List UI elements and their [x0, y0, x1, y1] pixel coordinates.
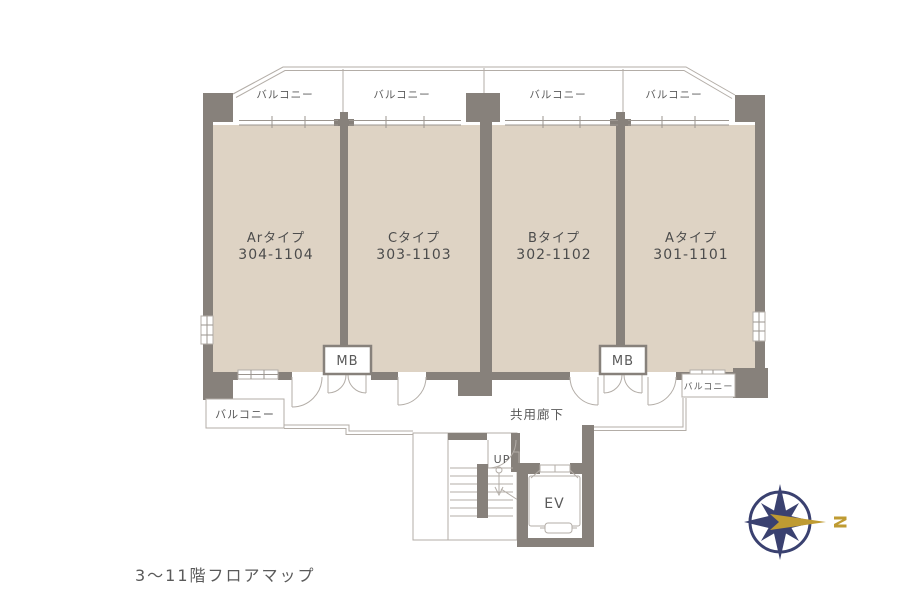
floor-plan: MB MB バルコニー バルコニー 共用廊下 UP: [0, 0, 900, 600]
compass-north-label: N: [829, 515, 849, 529]
unit-b-numbers: 302-1102: [516, 247, 591, 263]
stairwell: UP: [413, 433, 527, 540]
pillar-bottom-right: [733, 368, 768, 398]
wall-left-upper: [203, 122, 213, 317]
mb-label-1: MB: [336, 354, 358, 369]
floor-plan-page: MB MB バルコニー バルコニー 共用廊下 UP: [0, 0, 900, 600]
party-wall-b-a: [616, 112, 625, 372]
pillar-top-right: [735, 95, 765, 122]
unit-c-numbers: 303-1103: [376, 247, 451, 263]
page-caption: 3〜11階フロアマップ: [135, 566, 316, 585]
unit-a-numbers: 301-1101: [653, 247, 728, 263]
pillar-top-middle: [466, 93, 500, 122]
wall-right-lower: [755, 340, 765, 368]
balcony-top-label-3: バルコニー: [529, 89, 586, 101]
unit-ar-type: Arタイプ: [247, 231, 305, 246]
window-bottom-left: [238, 370, 278, 379]
elevator-door: [540, 465, 555, 472]
party-wall-ar-c: [340, 112, 348, 372]
mb-label-2: MB: [612, 354, 634, 369]
corridor-label: 共用廊下: [510, 407, 564, 422]
window-side-left: [201, 316, 213, 344]
wall-left-lower: [203, 343, 213, 372]
elevator-counterweight: [545, 523, 572, 533]
elevator-label: EV: [544, 496, 564, 512]
balcony-top-label-2: バルコニー: [373, 89, 430, 101]
compass-rose-icon: N: [744, 484, 849, 560]
balcony-top-label-1: バルコニー: [256, 89, 313, 101]
unit-a-type: Aタイプ: [665, 231, 717, 246]
balcony-bottom-left-label: バルコニー: [215, 408, 275, 421]
elevator: EV: [517, 425, 594, 547]
window-side-right: [753, 312, 765, 341]
pillar-bottom-middle: [458, 372, 492, 396]
pillar-top-left: [203, 93, 233, 122]
stair-handrail: [477, 464, 488, 518]
stairs-up-label: UP: [494, 453, 511, 466]
balcony-top-label-4: バルコニー: [645, 89, 702, 101]
wall-right-upper: [755, 122, 765, 313]
unit-b-type: Bタイプ: [528, 231, 580, 246]
unit-ar-numbers: 304-1104: [238, 247, 313, 263]
unit-c-type: Cタイプ: [388, 231, 440, 246]
balcony-bottom-right-label: バルコニー: [684, 382, 734, 393]
party-wall-c-b: [480, 122, 492, 372]
